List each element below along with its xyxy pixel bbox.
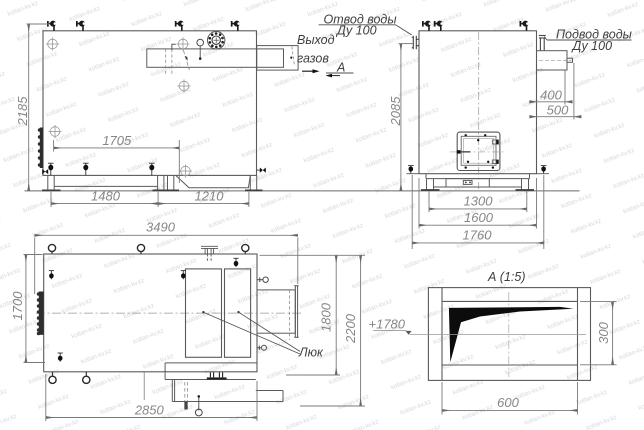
svg-text:1480: 1480 xyxy=(91,189,121,204)
svg-text:2200: 2200 xyxy=(343,313,358,344)
svg-text:1210: 1210 xyxy=(195,189,225,204)
svg-text:3490: 3490 xyxy=(146,220,176,235)
svg-text:1760: 1760 xyxy=(463,228,493,243)
svg-text:Ду 100: Ду 100 xyxy=(571,39,613,53)
svg-text:1705: 1705 xyxy=(102,133,132,148)
svg-text:А: А xyxy=(336,61,345,75)
svg-text:Люк: Люк xyxy=(298,346,324,360)
svg-text:500: 500 xyxy=(547,102,569,117)
svg-text:1300: 1300 xyxy=(464,194,494,209)
svg-text:А (1:5): А (1:5) xyxy=(487,270,526,284)
svg-text:2085: 2085 xyxy=(388,96,403,127)
svg-text:+1780: +1780 xyxy=(369,317,406,332)
svg-text:Ду 100: Ду 100 xyxy=(335,24,377,38)
svg-text:600: 600 xyxy=(497,395,519,410)
svg-text:2850: 2850 xyxy=(134,402,165,417)
svg-text:Выход: Выход xyxy=(297,33,335,47)
svg-text:2185: 2185 xyxy=(15,96,30,127)
svg-text:1800: 1800 xyxy=(319,302,334,332)
svg-text:1600: 1600 xyxy=(464,210,494,225)
svg-text:400: 400 xyxy=(540,88,562,103)
svg-text:300: 300 xyxy=(596,321,611,343)
svg-text:газов: газов xyxy=(297,52,329,66)
svg-text:1700: 1700 xyxy=(10,291,25,321)
